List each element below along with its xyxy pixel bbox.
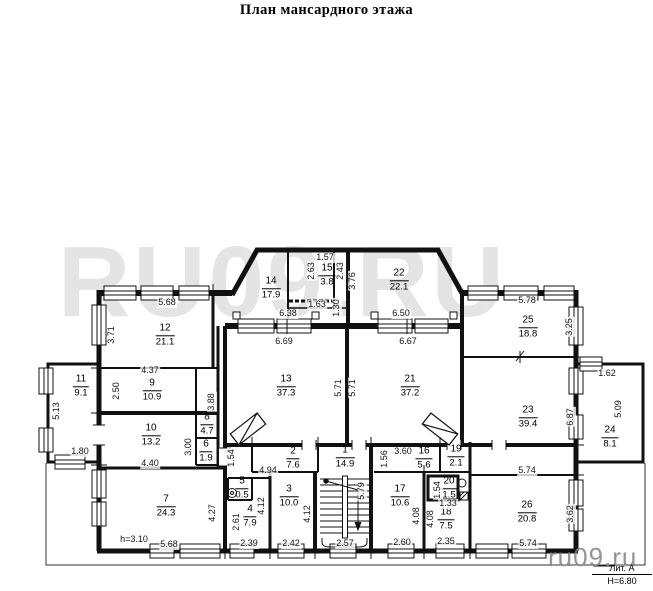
room-number: 1 [336,444,355,458]
room-number: 8 [200,411,213,425]
dim-label: 3.60 [393,447,413,457]
room-number: 26 [518,499,537,513]
dim-label: 5.79 [357,481,367,501]
room-label-4: 47.9 [243,503,256,528]
room-label-15: 153.8 [318,262,335,287]
room-area: 7.5 [437,520,454,532]
dim-label: 5.71 [334,378,344,398]
dim-label: 4.08 [426,509,436,529]
room-label-24: 248.1 [601,424,618,449]
room-number: 24 [601,424,618,438]
room-area: 21.1 [156,336,175,348]
room-number: 19 [447,443,464,457]
room-number: 2 [286,445,299,459]
dim-label: 4.94 [258,466,278,476]
labels-layer: 114.927.6310.047.950.561.9724.384.7910.9… [0,0,653,591]
legend-liter: Лит. А [592,563,652,575]
room-label-5: 50.5 [235,475,248,500]
dim-label: 3.00 [184,437,194,457]
room-area: 24.3 [157,507,176,519]
dim-label: 1.80 [70,447,90,457]
room-label-17: 1710.6 [391,483,410,508]
room-area: 13.2 [142,436,161,448]
room-area: 9.1 [73,387,89,399]
dim-label: 2.50 [112,381,122,401]
room-area: 14.9 [336,458,355,470]
dim-label: 1.56 [380,449,390,469]
room-area: 10.0 [280,497,299,509]
room-label-21: 2137.2 [401,373,420,398]
room-number: 15 [318,262,335,276]
dim-label: 1.57 [315,253,335,263]
room-area: 10.9 [143,391,162,403]
room-area: 22.1 [390,281,409,293]
room-number: 9 [143,377,162,391]
room-label-10: 1013.2 [142,422,161,447]
room-area: 0.5 [235,489,248,501]
dim-label: 1.54 [433,480,443,500]
dim-label: 5.71 [348,378,358,398]
room-area: 18.8 [519,328,538,340]
room-area: 17.9 [262,289,281,301]
room-label-26: 2620.8 [518,499,537,524]
dim-label: 6.50 [391,309,411,319]
room-label-13: 1337.3 [277,373,296,398]
room-area: 4.7 [200,425,213,437]
dim-label: 4.27 [208,503,218,523]
room-number: 4 [243,503,256,517]
dim-label: 4.08 [412,506,422,526]
room-label-12: 1221.1 [156,322,175,347]
dim-label: 3.62 [566,504,576,524]
room-label-7: 724.3 [157,493,176,518]
room-number: 20 [440,475,457,489]
room-label-6: 61.9 [199,438,212,463]
room-number: 14 [262,275,281,289]
dim-label: 2.43 [336,261,346,281]
dim-label: 6.67 [398,337,418,347]
room-label-23: 2339.4 [519,404,538,429]
dim-label: 1.63 [307,300,327,310]
room-label-25: 2518.8 [519,314,538,339]
dim-label: 6.87 [566,407,576,427]
dim-label: 5.68 [159,540,179,550]
dim-label: 6.38 [278,309,298,319]
dim-label: 1.62 [597,369,617,379]
room-area: 10.6 [391,497,410,509]
room-number: 10 [142,422,161,436]
dim-label: 2.42 [281,539,301,549]
room-label-2: 27.6 [286,445,299,470]
room-number: 12 [156,322,175,336]
room-area: 1.9 [199,452,212,464]
room-label-11: 119.1 [73,373,89,398]
room-area: 3.8 [318,276,335,288]
dim-label: 5.09 [614,399,624,419]
room-label-22: 2222.1 [390,267,409,292]
floorplan-page: План мансардного этажа RU09.RU [0,0,653,591]
dim-label: 3.25 [565,317,575,337]
dim-label: 2.39 [239,539,259,549]
room-area: 37.2 [401,387,420,399]
dim-label: 2.60 [392,538,412,548]
room-number: 5 [235,475,248,489]
legend-height: Н=6.80 [592,575,652,586]
room-number: 11 [73,373,89,387]
room-number: 16 [415,445,432,459]
room-area: 37.3 [277,387,296,399]
room-area: 7.6 [286,459,299,471]
dim-label: 2.61 [232,512,242,532]
room-area: 2.1 [447,457,464,469]
dim-label: 4.12 [303,504,313,524]
dim-label: 5.74 [518,539,538,549]
dim-label: 5.78 [517,296,537,306]
dim-label: 4.40 [140,459,160,469]
room-area: 39.4 [519,418,538,430]
room-label-14: 1417.9 [262,275,281,300]
room-number: 6 [199,438,212,452]
room-number: 13 [277,373,296,387]
room-area: 7.9 [243,517,256,529]
dim-label: 6.69 [274,337,294,347]
room-label-18: 187.5 [437,506,454,531]
room-area: 8.1 [601,438,618,450]
dim-label: 5.74 [517,466,537,476]
legend: Лит. А Н=6.80 [592,563,652,586]
dim-label: h=3.10 [119,535,149,545]
dim-label: 3.76 [348,271,358,291]
room-area: 20.8 [518,513,537,525]
room-number: 25 [519,314,538,328]
room-label-8: 84.7 [200,411,213,436]
dim-label: 4.37 [140,366,160,376]
room-label-20: 201.5 [440,475,457,500]
room-label-19: 192.1 [447,443,464,468]
room-number: 23 [519,404,538,418]
dim-label: 1.30 [332,298,342,318]
page-title: План мансардного этажа [0,2,653,19]
room-area: 5.6 [415,459,432,471]
dim-label: 3.88 [207,392,217,412]
dim-label: 3.71 [107,325,117,345]
room-label-1: 114.9 [336,444,355,469]
dim-label: 2.57 [335,539,355,549]
room-label-9: 910.9 [143,377,162,402]
room-number: 3 [280,483,299,497]
room-label-16: 165.6 [415,445,432,470]
room-number: 22 [390,267,409,281]
dim-label: 1.54 [227,448,237,468]
dim-label: 5.13 [52,401,62,421]
dim-label: 2.35 [436,537,456,547]
room-number: 7 [157,493,176,507]
dim-label: 1.33 [438,499,458,509]
dim-label: 4.12 [257,496,267,516]
room-number: 17 [391,483,410,497]
dim-label: 2.63 [307,261,317,281]
dim-label: 5.68 [157,298,177,308]
room-label-3: 310.0 [280,483,299,508]
room-number: 21 [401,373,420,387]
